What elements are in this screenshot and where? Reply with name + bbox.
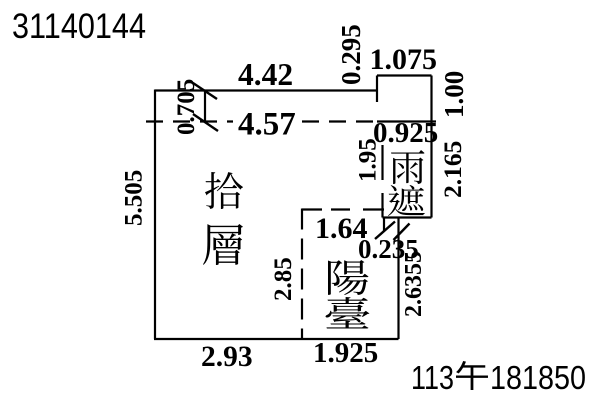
svg-text:4.42: 4.42 xyxy=(238,57,293,92)
svg-text:113: 113 xyxy=(411,359,454,396)
svg-text:1.925: 1.925 xyxy=(313,337,378,369)
svg-text:1.075: 1.075 xyxy=(370,43,438,76)
svg-text:1.00: 1.00 xyxy=(439,71,469,118)
svg-text:5.505: 5.505 xyxy=(121,170,148,226)
svg-text:4.57: 4.57 xyxy=(238,107,296,143)
svg-text:2.165: 2.165 xyxy=(438,141,467,198)
svg-text:2.93: 2.93 xyxy=(201,341,253,373)
svg-text:31140144: 31140144 xyxy=(12,7,146,46)
svg-text:2.85: 2.85 xyxy=(270,257,297,301)
svg-text:0.295: 0.295 xyxy=(336,24,366,85)
svg-text:181850: 181850 xyxy=(490,359,586,396)
svg-text:1.95: 1.95 xyxy=(355,138,382,182)
svg-text:0.705: 0.705 xyxy=(173,79,200,135)
svg-text:2.6355: 2.6355 xyxy=(401,251,427,317)
svg-text:0.925: 0.925 xyxy=(373,117,438,149)
